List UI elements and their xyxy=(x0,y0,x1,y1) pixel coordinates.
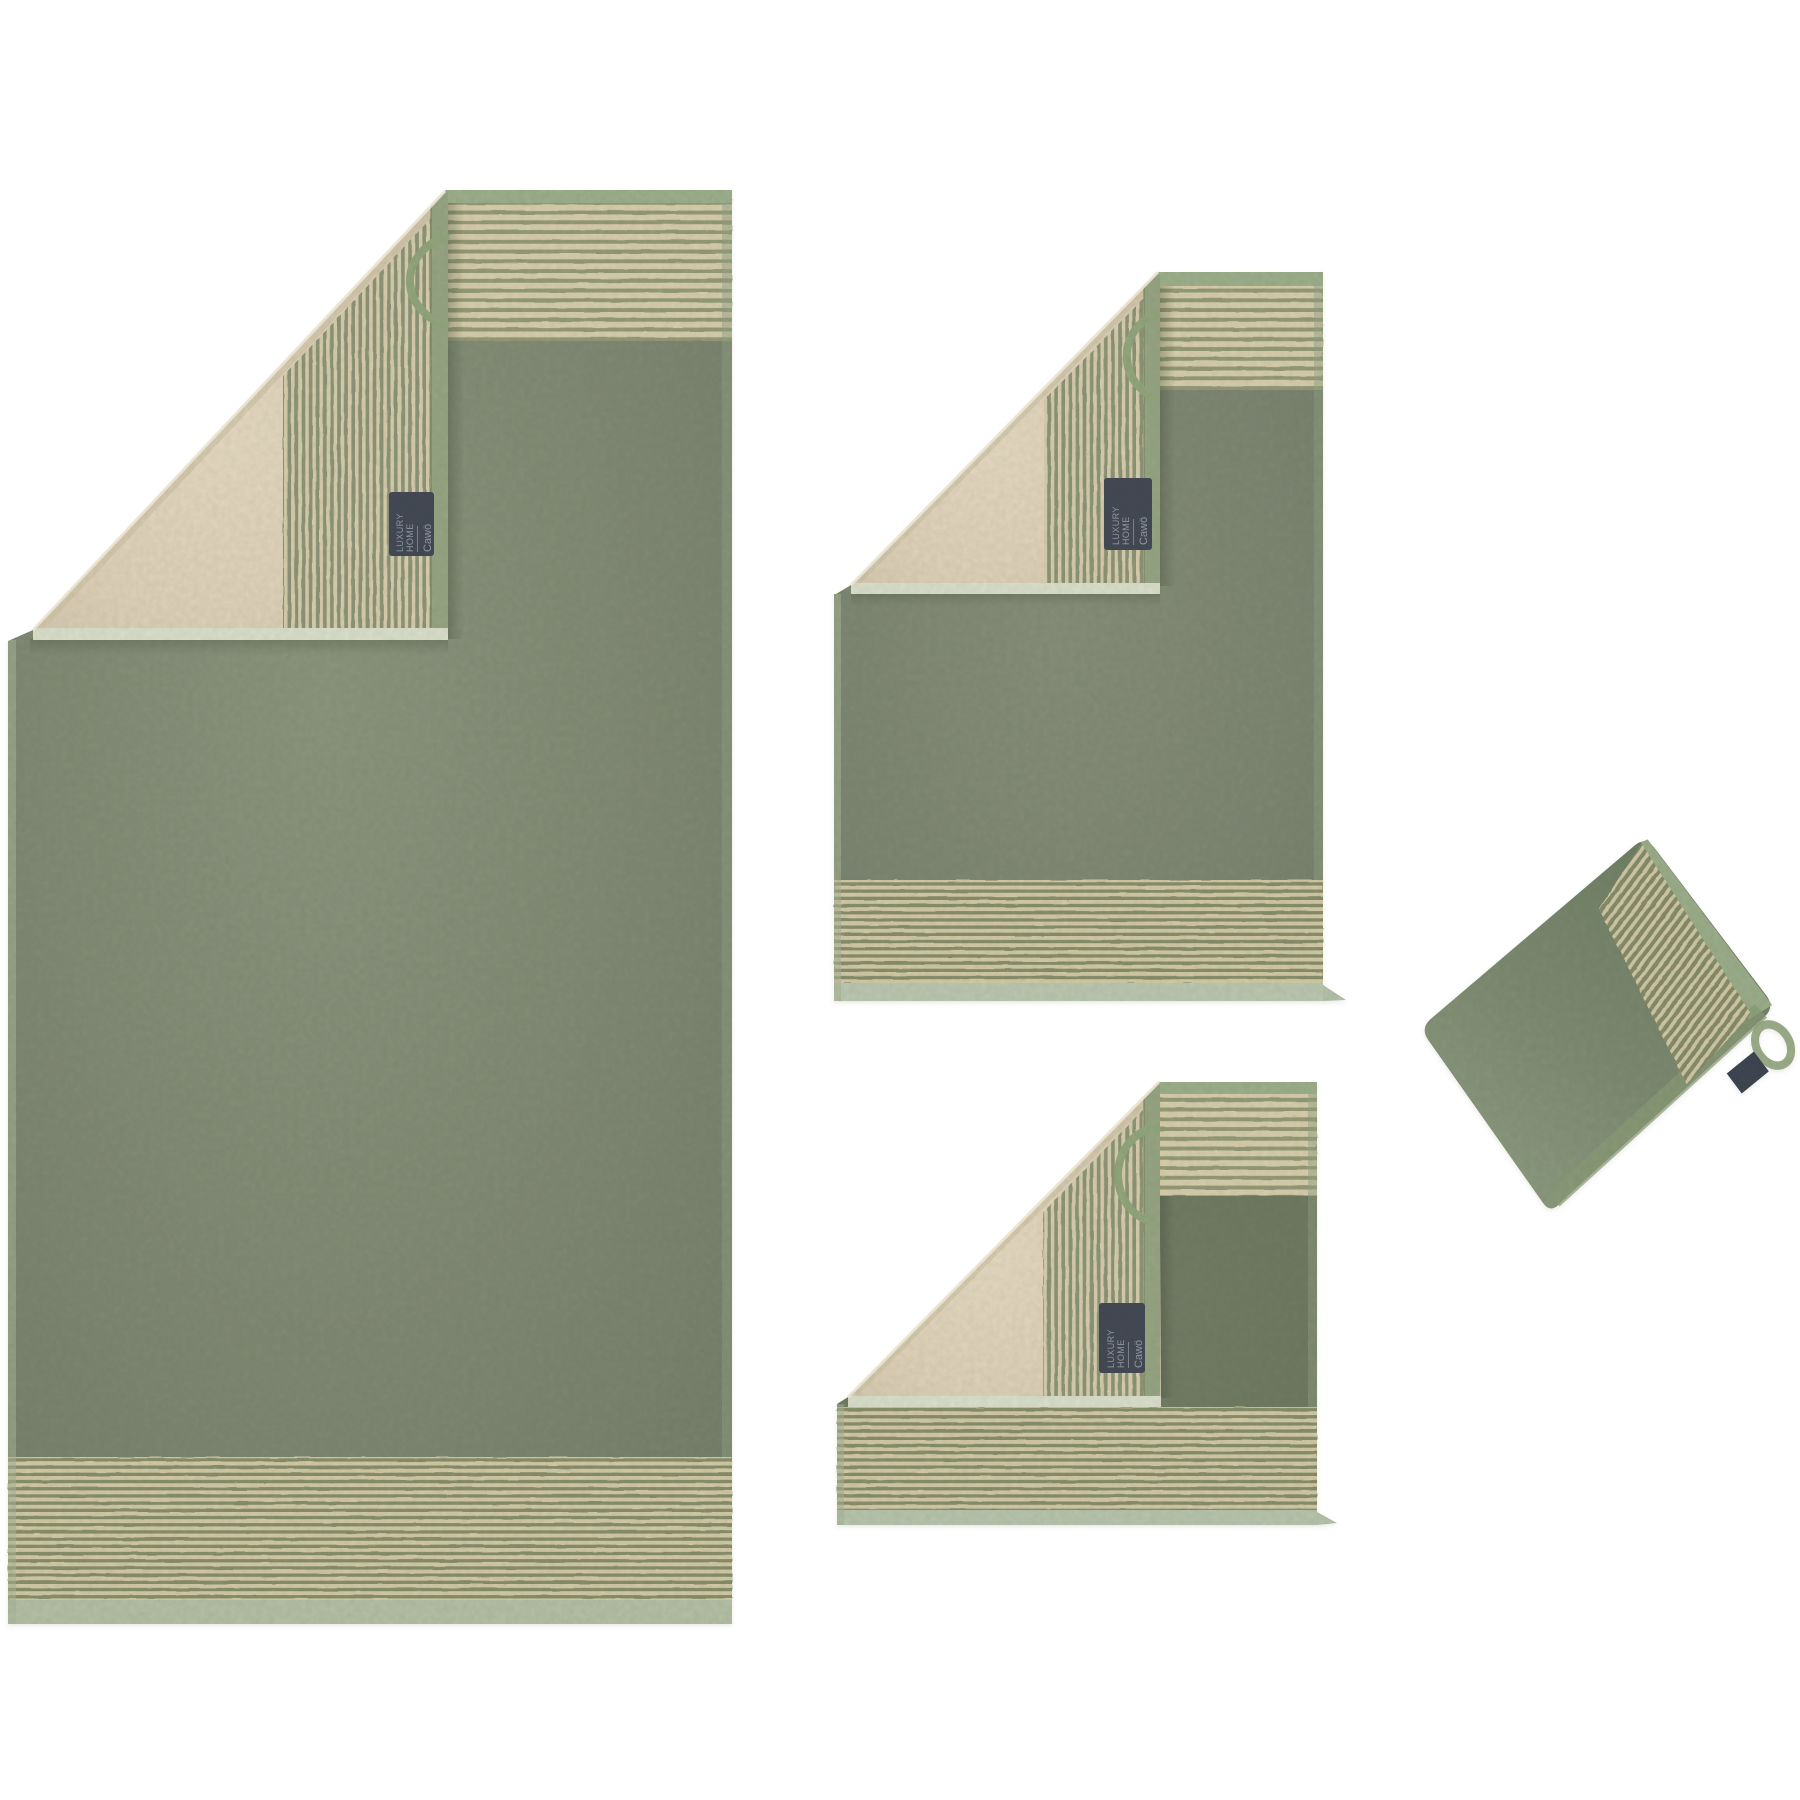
svg-text:LUXURY: LUXURY xyxy=(1111,506,1121,545)
svg-text:LUXURY: LUXURY xyxy=(1106,1329,1116,1368)
svg-text:Cawö: Cawö xyxy=(1133,1340,1145,1368)
svg-text:Cawö: Cawö xyxy=(1138,517,1150,545)
svg-text:HOME: HOME xyxy=(1121,516,1131,545)
svg-text:Cawö: Cawö xyxy=(422,524,434,552)
svg-text:HOME: HOME xyxy=(405,523,415,552)
svg-text:HOME: HOME xyxy=(1116,1339,1126,1368)
svg-text:LUXURY: LUXURY xyxy=(395,513,405,552)
